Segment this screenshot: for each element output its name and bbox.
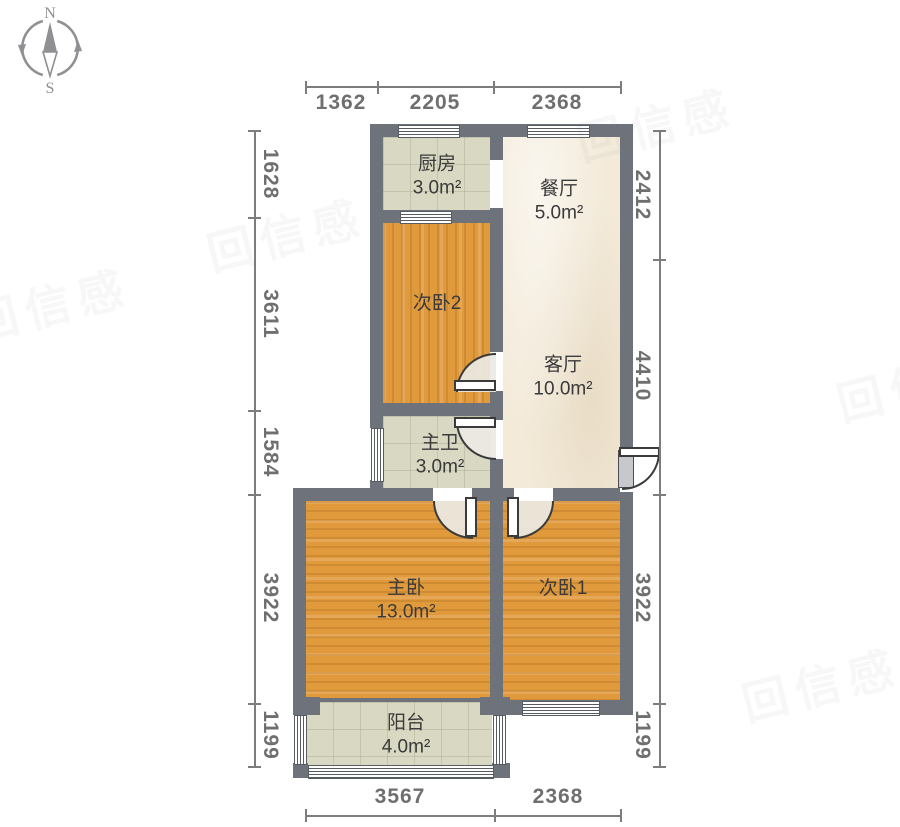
bedroom1-door-leaf <box>507 497 519 537</box>
balcony-bottom-window <box>308 765 494 779</box>
watermark: 回信感 <box>829 331 900 434</box>
wall <box>293 697 320 715</box>
tick <box>248 494 261 496</box>
wall <box>492 763 510 778</box>
dim-label-right-3: 1199 <box>630 710 654 760</box>
master-door-leaf <box>465 497 477 537</box>
dim-label-right-1: 4410 <box>630 351 654 402</box>
bedroom1-door-opening <box>514 488 553 501</box>
room-name: 主卧 <box>376 576 435 600</box>
tick <box>653 766 666 768</box>
tick <box>653 494 666 496</box>
tick <box>493 81 495 94</box>
tick <box>305 81 307 94</box>
wall <box>370 124 383 428</box>
room-name: 厨房 <box>413 152 462 176</box>
room-label-bedroom2: 次卧2 <box>413 292 462 316</box>
compass-arrow-left <box>18 44 26 56</box>
tick <box>305 809 307 822</box>
compass-south-label: S <box>46 80 55 96</box>
tick <box>248 217 261 219</box>
room-area: 3.0m² <box>413 176 462 200</box>
dining-window <box>527 125 590 138</box>
room-area: 10.0m² <box>533 377 592 401</box>
room-label-kitchen: 厨房 3.0m² <box>413 152 462 200</box>
kitchen-pass-window <box>400 211 452 224</box>
compass-icon: N S <box>8 4 92 96</box>
tick <box>248 130 261 132</box>
entrance-door-leaf <box>619 447 660 457</box>
room-name: 客厅 <box>533 353 592 377</box>
watermark: 回信感 <box>734 631 900 734</box>
room-label-balcony: 阳台 4.0m² <box>382 711 431 759</box>
wall <box>383 403 490 416</box>
kitchen-window <box>398 125 460 138</box>
dim-label-left-3: 3922 <box>258 573 282 624</box>
dimension-line-right <box>659 130 661 767</box>
bedroom2-door-leaf <box>454 380 496 391</box>
dim-label-bottom-0: 3567 <box>375 785 426 809</box>
tick <box>248 766 261 768</box>
dim-label-right-2: 3922 <box>630 573 654 624</box>
room-label-bath: 主卫 3.0m² <box>416 431 465 479</box>
wall <box>490 124 503 702</box>
tick <box>620 809 622 822</box>
bath-door-leaf <box>454 417 496 428</box>
tick <box>248 703 261 705</box>
dim-label-left-4: 1199 <box>258 710 282 760</box>
dim-label-left-1: 3611 <box>258 289 282 339</box>
dim-label-top-1: 2205 <box>410 91 461 115</box>
dim-label-left-2: 1584 <box>258 427 282 478</box>
watermark: 回信感 <box>0 251 138 354</box>
balcony-left-window <box>294 715 307 765</box>
room-label-master: 主卧 13.0m² <box>376 576 435 624</box>
compass-needle-icon <box>43 22 57 52</box>
floor-plan-canvas: N S 厨房 3.0 <box>0 0 900 827</box>
tick <box>494 809 496 822</box>
dim-label-right-0: 2412 <box>630 170 654 221</box>
dimension-line-left <box>254 130 256 767</box>
dim-label-top-2: 2368 <box>532 91 583 115</box>
room-name: 主卫 <box>416 431 465 455</box>
dimension-line-bottom <box>305 815 622 817</box>
room-label-dining: 餐厅 5.0m² <box>535 177 584 225</box>
dim-label-bottom-1: 2368 <box>533 785 584 809</box>
room-area: 13.0m² <box>376 600 435 624</box>
room-area: 5.0m² <box>535 201 584 225</box>
tick <box>620 81 622 94</box>
compass-north-label: N <box>44 5 56 22</box>
dim-label-top-0: 1362 <box>316 91 367 115</box>
wall <box>293 763 308 778</box>
tick <box>653 130 666 132</box>
tick <box>248 410 261 412</box>
dim-label-left-0: 1628 <box>258 149 282 200</box>
room-name: 次卧2 <box>413 292 462 316</box>
room-name: 次卧1 <box>539 577 588 601</box>
entrance-door-arc <box>622 452 660 490</box>
room-area: 3.0m² <box>416 455 465 479</box>
balcony-threshold <box>320 698 480 702</box>
tick <box>377 81 379 94</box>
room-name: 餐厅 <box>535 177 584 201</box>
room-area: 4.0m² <box>382 735 431 759</box>
balcony-right-window <box>493 715 506 765</box>
compass-arrow-right <box>74 40 82 52</box>
bath-window <box>371 428 384 482</box>
bedroom1-window <box>522 701 600 716</box>
room-label-living: 客厅 10.0m² <box>533 353 592 401</box>
tick <box>653 259 666 261</box>
tick <box>653 703 666 705</box>
watermark: 回信感 <box>199 181 372 284</box>
room-name: 阳台 <box>382 711 431 735</box>
room-label-bedroom1: 次卧1 <box>539 577 588 601</box>
wall <box>480 697 510 715</box>
kitchen-door-opening <box>490 160 503 208</box>
wall <box>293 501 306 715</box>
dimension-line-top <box>305 86 622 88</box>
